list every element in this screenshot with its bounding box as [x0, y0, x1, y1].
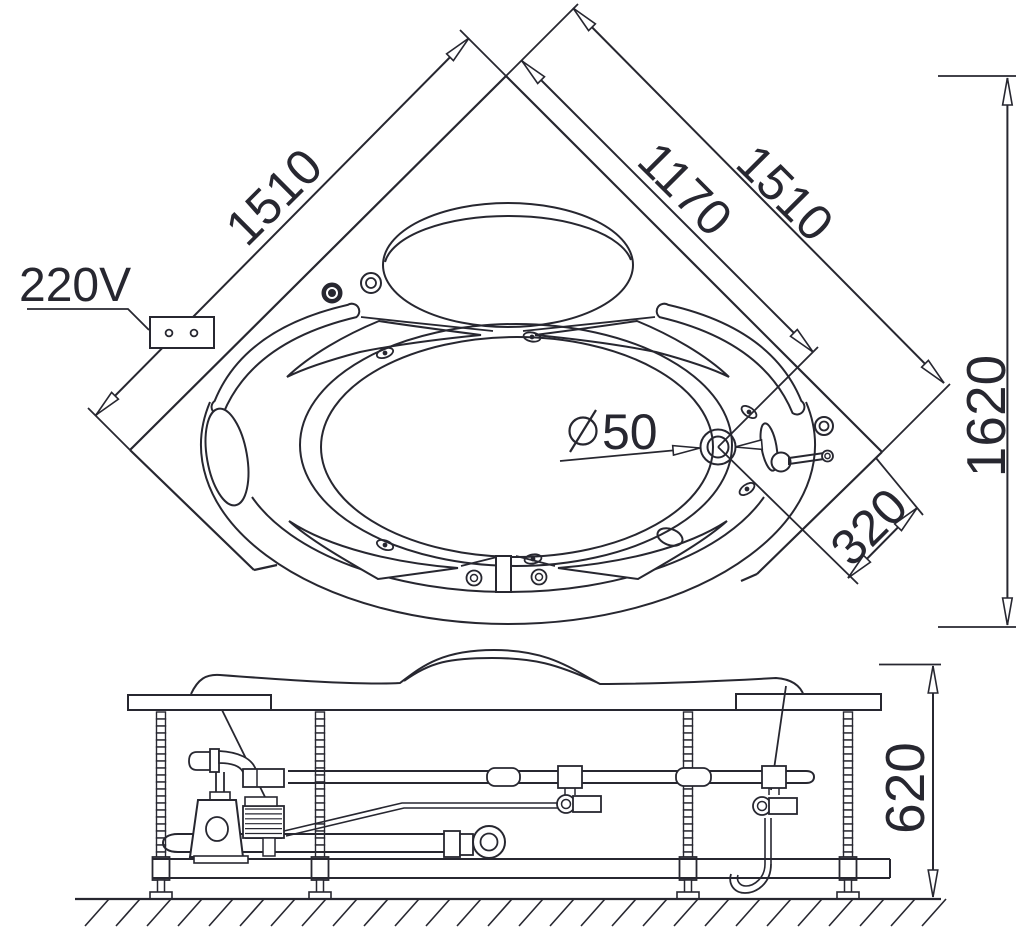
- svg-text:1510: 1510: [215, 138, 333, 256]
- svg-text:1620: 1620: [955, 355, 1017, 477]
- svg-text:1510: 1510: [726, 134, 844, 252]
- svg-text:1170: 1170: [627, 131, 743, 247]
- svg-text:50: 50: [602, 404, 658, 460]
- svg-text:620: 620: [874, 742, 936, 834]
- svg-text:220V: 220V: [19, 259, 131, 312]
